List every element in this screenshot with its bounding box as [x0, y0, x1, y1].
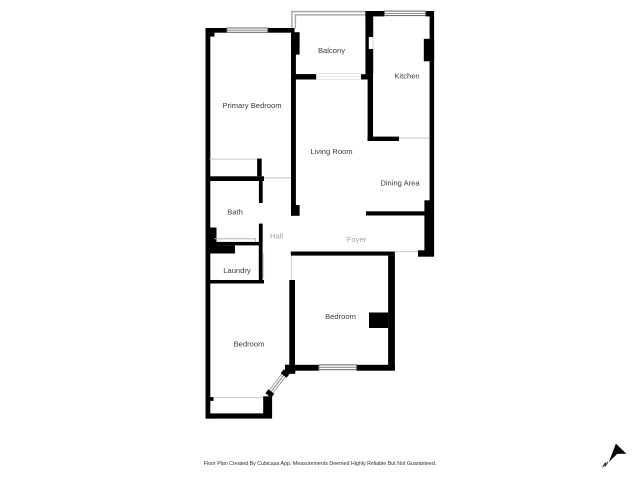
svg-text:Floor Plan Created By Cubicasa: Floor Plan Created By Cubicasa App. Meas… [204, 461, 437, 467]
svg-text:Kitchen: Kitchen [394, 72, 419, 81]
svg-text:Hall: Hall [270, 232, 283, 241]
svg-text:Bath: Bath [227, 208, 243, 217]
svg-text:Balcony: Balcony [318, 46, 345, 55]
svg-text:Bedroom: Bedroom [234, 340, 265, 349]
svg-text:Dining Area: Dining Area [380, 179, 420, 188]
svg-text:Bedroom: Bedroom [325, 312, 356, 321]
svg-text:Living Room: Living Room [310, 147, 352, 156]
svg-text:Foyer: Foyer [347, 235, 367, 244]
svg-text:Primary Bedroom: Primary Bedroom [222, 101, 281, 110]
svg-text:Laundry: Laundry [223, 266, 251, 275]
